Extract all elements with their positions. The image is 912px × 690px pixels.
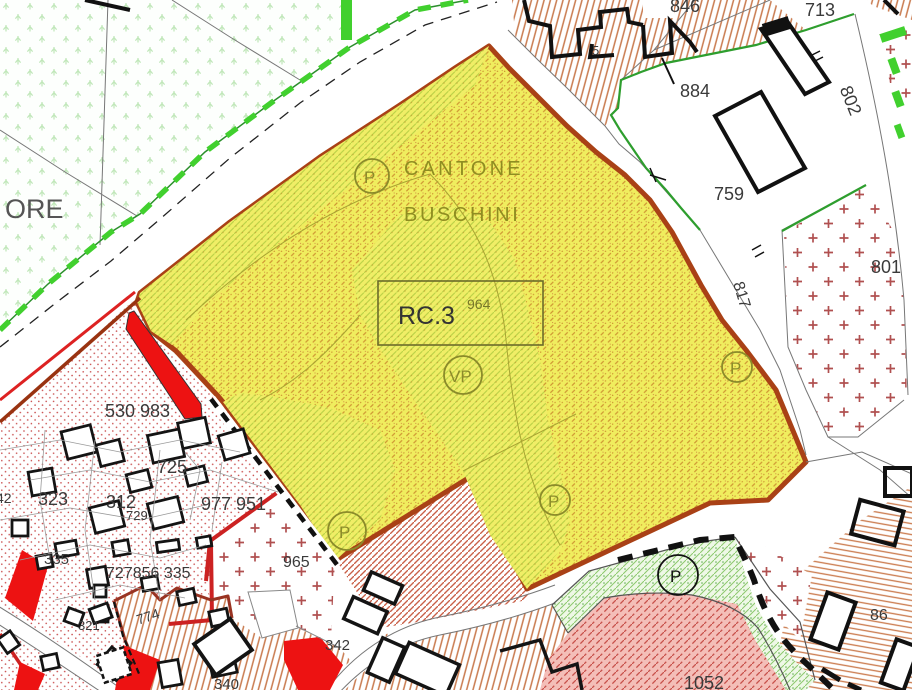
svg-text:846: 846 [670, 0, 700, 16]
svg-text:86: 86 [870, 607, 888, 624]
svg-text:P: P [548, 492, 559, 511]
svg-text:965: 965 [283, 554, 310, 571]
svg-text:RC.3: RC.3 [398, 302, 455, 330]
svg-text:342: 342 [325, 637, 350, 654]
svg-text:P: P [339, 523, 350, 542]
svg-text:340: 340 [214, 676, 239, 690]
svg-text:P: P [364, 168, 375, 187]
svg-text:335: 335 [44, 551, 69, 568]
svg-text:P: P [670, 567, 681, 586]
svg-text:42: 42 [0, 490, 12, 506]
svg-text:5: 5 [592, 43, 599, 58]
svg-text:727856 335: 727856 335 [106, 565, 191, 582]
svg-text:977 951: 977 951 [201, 494, 266, 514]
svg-text:725: 725 [157, 457, 187, 477]
svg-text:P: P [730, 359, 741, 378]
svg-text:759: 759 [714, 184, 744, 204]
svg-text:VP: VP [449, 367, 472, 386]
svg-text:729: 729 [126, 508, 148, 523]
svg-text:ORE: ORE [5, 194, 64, 224]
svg-text:1052: 1052 [684, 673, 724, 690]
svg-text:964: 964 [467, 296, 491, 312]
svg-text:530 983: 530 983 [105, 401, 170, 421]
svg-text:BUSCHINI: BUSCHINI [404, 204, 520, 226]
svg-text:713: 713 [805, 0, 835, 20]
svg-text:884: 884 [680, 81, 710, 101]
svg-text:801: 801 [871, 257, 901, 277]
svg-text:CANTONE: CANTONE [404, 158, 524, 180]
svg-text:323: 323 [38, 489, 68, 509]
svg-text:321: 321 [78, 618, 100, 633]
